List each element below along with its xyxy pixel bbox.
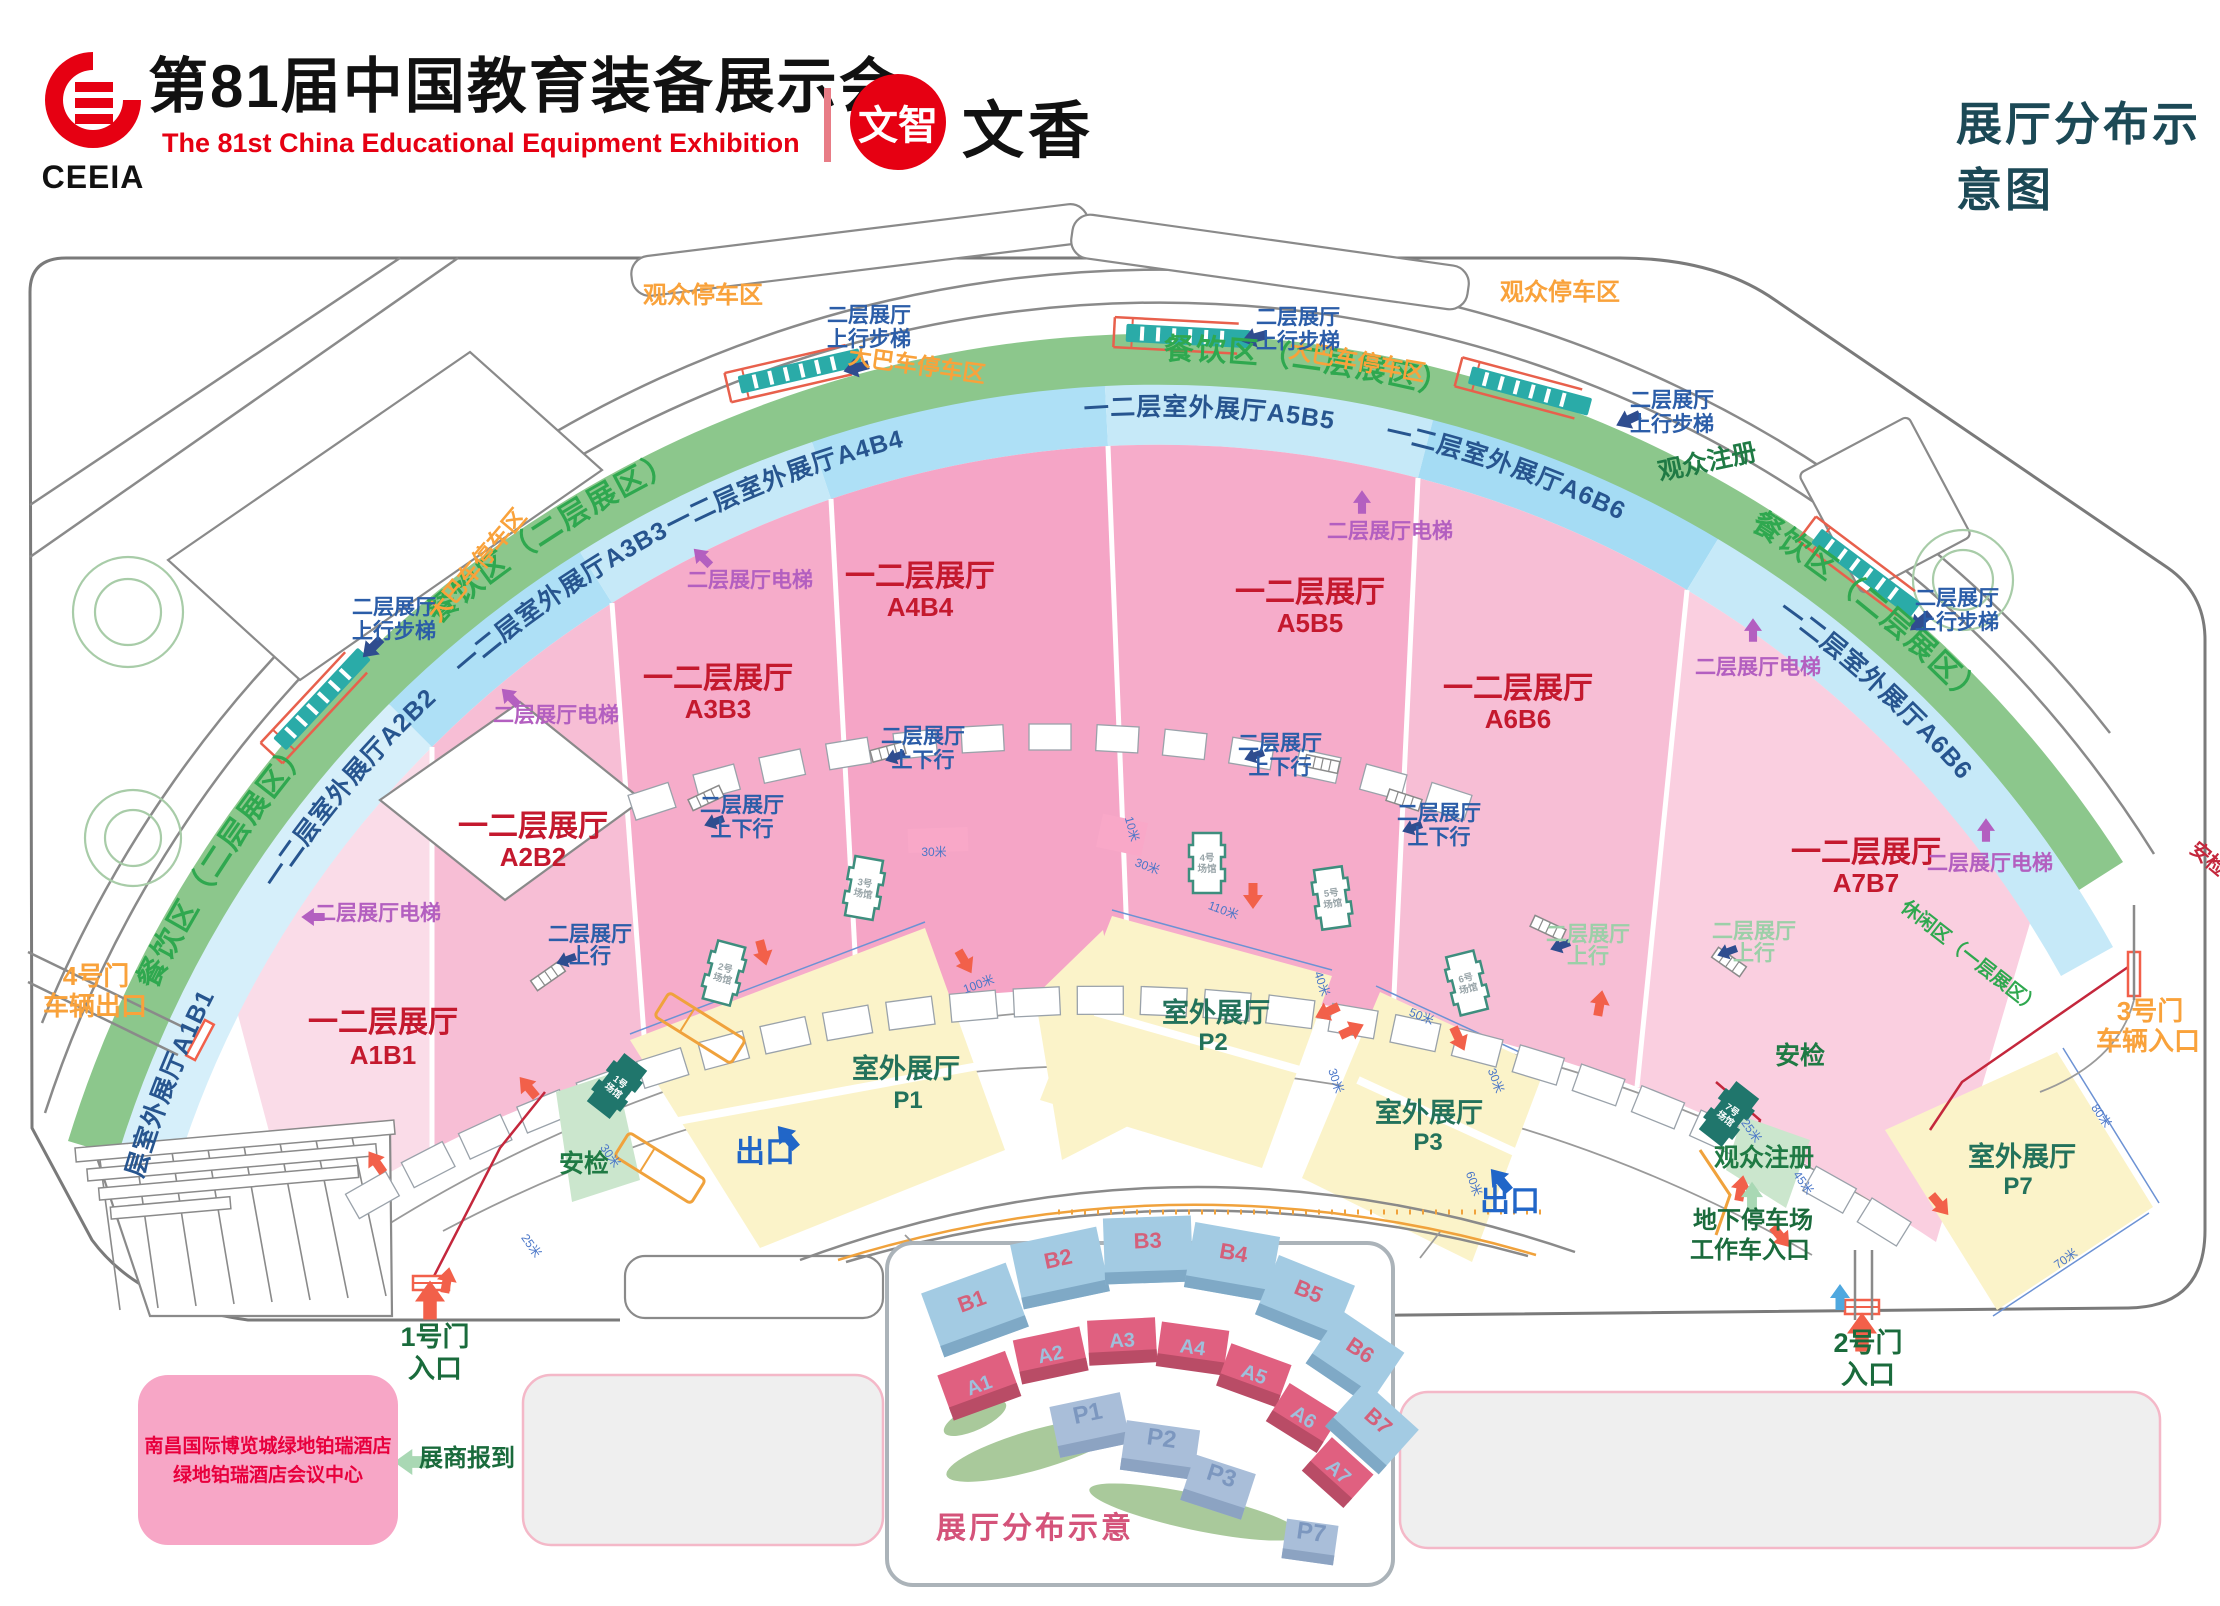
svg-text:二层展厅: 二层展厅 [1397, 802, 1481, 825]
svg-text:A5B5: A5B5 [1277, 608, 1343, 638]
svg-text:A1B1: A1B1 [350, 1040, 416, 1070]
svg-text:二层展厅电梯: 二层展厅电梯 [493, 703, 619, 727]
hall-a5b5: 一二层展厅 [1235, 576, 1385, 609]
hotel-box: 南昌国际博览城绿地铂瑞酒店 绿地铂瑞酒店会议中心 [138, 1375, 398, 1545]
svg-text:二层展厅: 二层展厅 [548, 923, 632, 946]
hall-a2b2: 一二层展厅 [458, 810, 608, 843]
exit-west: 出口 [735, 1136, 795, 1169]
svg-text:二层展厅: 二层展厅 [881, 725, 965, 748]
svg-text:入口: 入口 [408, 1354, 462, 1384]
svg-text:P2: P2 [1145, 1423, 1178, 1454]
svg-text:4号场馆: 4号场馆 [1197, 853, 1217, 875]
hall-a3b3: 一二层展厅 [643, 662, 793, 695]
svg-text:二层展厅电梯: 二层展厅电梯 [315, 901, 441, 925]
visitor-parking-west: 观众停车区 [643, 281, 763, 309]
gate2: 2号门 [1833, 1328, 1902, 1358]
svg-text:二层展厅: 二层展厅 [827, 304, 911, 327]
exhibition-map-page: CEEIA 第81届中国教育装备展示会 The 81st China Educa… [0, 0, 2220, 1606]
svg-text:上行: 上行 [1733, 941, 1775, 965]
svg-text:二层展厅: 二层展厅 [1915, 587, 1999, 610]
svg-text:入口: 入口 [1841, 1360, 1895, 1390]
svg-text:上行: 上行 [569, 944, 611, 968]
svg-text:A7B7: A7B7 [1833, 868, 1899, 898]
svg-text:B4: B4 [1218, 1238, 1251, 1268]
svg-text:二层展厅: 二层展厅 [1256, 306, 1340, 329]
security-east: 安检 [1775, 1041, 1825, 1070]
hall-a7b7: 一二层展厅 [1791, 836, 1941, 869]
svg-text:二层展厅: 二层展厅 [352, 596, 436, 619]
svg-text:上行: 上行 [1567, 944, 1609, 968]
svg-text:上下行: 上下行 [1408, 825, 1471, 849]
outdoor-p7: 室外展厅 [1968, 1141, 2076, 1172]
hall-a1b1: 一二层展厅 [308, 1006, 458, 1039]
visitor-parking-east: 观众停车区 [1500, 278, 1620, 306]
hall-a4b4: 一二层展厅 [845, 560, 995, 593]
svg-text:二层展厅电梯: 二层展厅电梯 [687, 568, 813, 592]
svg-text:二层展厅: 二层展厅 [1712, 920, 1796, 943]
legend-title: 展厅分布示意 [936, 1511, 1134, 1545]
svg-text:A3B3: A3B3 [685, 694, 751, 724]
info-box-right [1400, 1392, 2160, 1548]
svg-text:A4B4: A4B4 [887, 592, 954, 622]
svg-text:P7: P7 [1295, 1517, 1328, 1548]
svg-text:车辆出口: 车辆出口 [43, 991, 147, 1021]
svg-text:二层展厅: 二层展厅 [1546, 923, 1630, 946]
svg-text:上行步梯: 上行步梯 [1915, 610, 1999, 634]
svg-text:上下行: 上下行 [892, 748, 955, 772]
gate2-marker [1845, 1300, 1879, 1314]
svg-text:二层展厅: 二层展厅 [1630, 389, 1714, 412]
svg-text:二层展厅电梯: 二层展厅电梯 [1927, 851, 2053, 875]
svg-text:上行步梯: 上行步梯 [352, 619, 436, 643]
security-gate3: 安检 [2185, 837, 2220, 881]
svg-text:A6B6: A6B6 [1485, 704, 1551, 734]
svg-text:工作车入口: 工作车入口 [1690, 1236, 1810, 1264]
svg-text:30米: 30米 [1325, 1067, 1346, 1095]
svg-text:二层展厅: 二层展厅 [700, 794, 784, 817]
svg-text:P2: P2 [1198, 1029, 1227, 1056]
svg-text:地下停车场: 地下停车场 [1693, 1206, 1813, 1234]
svg-text:上下行: 上下行 [711, 817, 774, 841]
svg-text:车辆入口: 车辆入口 [2096, 1026, 2200, 1056]
outdoor-p2: 室外展厅 [1162, 997, 1270, 1028]
svg-text:二层展厅电梯: 二层展厅电梯 [1327, 519, 1453, 543]
svg-text:B3: B3 [1133, 1228, 1162, 1254]
hall-a6b6: 一二层展厅 [1443, 672, 1593, 705]
hotel-line2: 绿地铂瑞酒店会议中心 [173, 1463, 363, 1486]
gate3: 3号门 [2117, 996, 2183, 1026]
gate1: 1号门 [400, 1322, 469, 1352]
svg-text:A2B2: A2B2 [500, 842, 566, 872]
outdoor-p3: 室外展厅 [1375, 1097, 1483, 1128]
venue-map: 1号场馆 2号场馆 3号场馆 4号场馆 5号场馆 6号场馆 7号场馆 [0, 0, 2220, 1606]
svg-text:P7: P7 [2003, 1173, 2032, 1200]
hotel-line1: 南昌国际博览城绿地铂瑞酒店 [144, 1434, 391, 1457]
exhibitor-checkin: 展商报到 [419, 1444, 515, 1472]
svg-text:上行步梯: 上行步梯 [1630, 412, 1714, 436]
svg-text:上行步梯: 上行步梯 [1256, 329, 1340, 353]
registration-southeast: 观众注册 [1714, 1143, 1814, 1172]
gate4: 4号门 [63, 961, 129, 991]
svg-text:30米: 30米 [921, 845, 946, 859]
svg-text:上行步梯: 上行步梯 [827, 327, 911, 351]
svg-text:A3: A3 [1109, 1329, 1136, 1352]
legend-inset: A1 A2 A3 A4 A5 A6 A7 B1 B2 B3 B4 B5 B6 B… [887, 1215, 1419, 1585]
svg-text:二层展厅电梯: 二层展厅电梯 [1695, 655, 1821, 679]
svg-text:二层展厅: 二层展厅 [1238, 732, 1322, 755]
exit-east: 出口 [1480, 1185, 1540, 1218]
info-box-left [523, 1375, 883, 1545]
svg-text:上下行: 上下行 [1249, 755, 1312, 779]
svg-text:A4: A4 [1178, 1335, 1207, 1360]
svg-text:25米: 25米 [518, 1231, 544, 1260]
svg-text:P1: P1 [893, 1087, 922, 1114]
outdoor-p1: 室外展厅 [852, 1053, 960, 1084]
svg-text:P3: P3 [1413, 1129, 1442, 1156]
